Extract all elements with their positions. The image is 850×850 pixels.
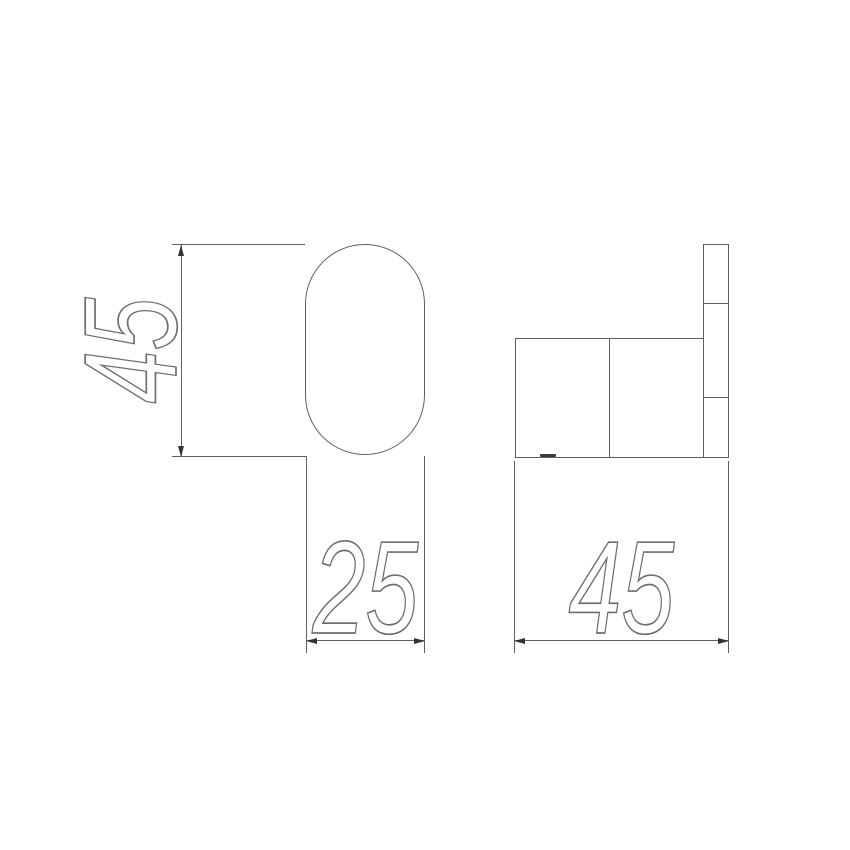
depth-dim-label: 45 — [514, 538, 729, 638]
side-view-body-divider-line — [609, 338, 610, 458]
bottom-edge-tick-mark — [540, 454, 556, 457]
height-dim-line — [181, 245, 182, 457]
width-dim-line — [306, 640, 425, 641]
side-view-wall-plate-outline — [703, 244, 729, 458]
width-dim-arrowhead-right-icon — [414, 638, 425, 644]
width-dim-extension-line-left — [306, 457, 307, 653]
width-dim-extension-line-right — [424, 456, 425, 653]
side-view-plate-tangent-line-bottom — [703, 397, 729, 398]
depth-dim-arrowhead-left-icon — [514, 638, 525, 644]
depth-dim-extension-line-left — [514, 461, 515, 653]
height-dim-arrowhead-bottom-icon — [178, 446, 184, 457]
width-dim-label: 25 — [306, 538, 425, 638]
depth-dim-extension-line-right — [728, 461, 729, 653]
side-view-plate-tangent-line-top — [703, 303, 729, 304]
height-dim-extension-line-top — [172, 244, 305, 245]
depth-dim-line — [514, 640, 729, 641]
height-dim-label: 45 — [81, 244, 181, 458]
drawing-canvas: 45 25 45 — [0, 0, 850, 850]
width-dim-arrowhead-left-icon — [306, 638, 317, 644]
height-dim-arrowhead-top-icon — [178, 245, 184, 256]
front-view-capsule-outline — [305, 244, 425, 455]
height-dim-extension-line-bottom — [172, 456, 307, 457]
depth-dim-arrowhead-right-icon — [718, 638, 729, 644]
